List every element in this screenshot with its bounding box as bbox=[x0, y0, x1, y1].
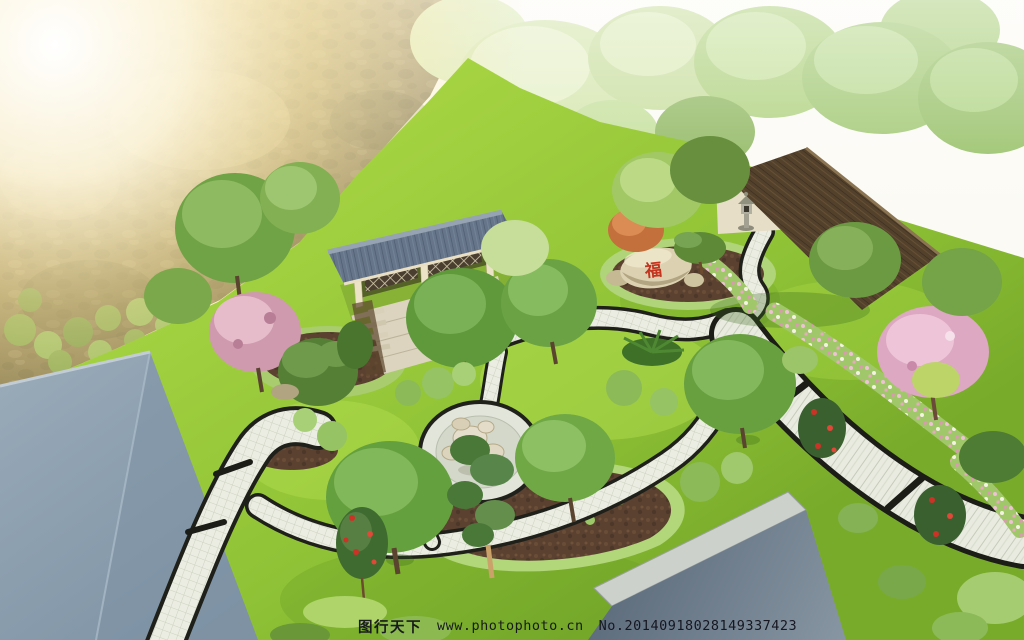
watermark: 图行天下 www.photophoto.cn No.20140918028149… bbox=[358, 616, 797, 636]
japanese-maple bbox=[959, 431, 1024, 483]
tree bbox=[144, 268, 212, 324]
watermark-url: www.photophoto.cn bbox=[437, 618, 584, 634]
shrub bbox=[782, 346, 818, 374]
garden-scene-canvas: 福 bbox=[0, 0, 1024, 640]
garden-landscape-rendering: 福 bbox=[0, 0, 1024, 640]
pine-tree bbox=[670, 136, 750, 204]
tree bbox=[481, 220, 549, 276]
pine-tree bbox=[922, 248, 1002, 316]
watermark-serial: No.20140918028149337423 bbox=[599, 618, 797, 634]
pine-tree-highlight bbox=[817, 226, 873, 270]
garden-stone bbox=[271, 384, 299, 400]
shrub bbox=[912, 362, 960, 398]
conifer bbox=[337, 321, 373, 369]
tree bbox=[260, 162, 340, 234]
rock-inscription: 福 bbox=[643, 259, 663, 282]
watermark-site-name: 图行天下 bbox=[358, 616, 422, 637]
